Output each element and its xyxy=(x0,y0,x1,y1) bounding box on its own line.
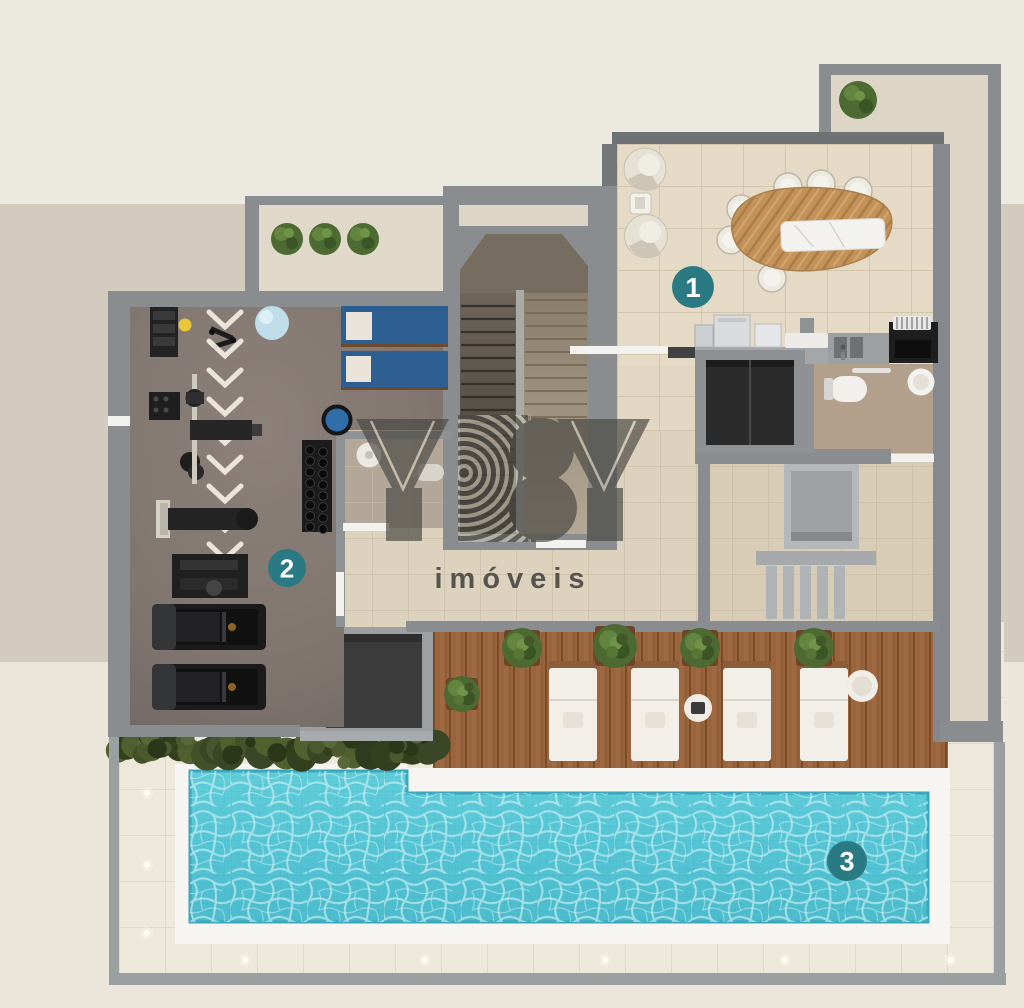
svg-text:imóveis: imóveis xyxy=(435,563,592,595)
svg-text:1: 1 xyxy=(685,272,701,303)
svg-text:2: 2 xyxy=(280,553,294,583)
svg-text:3: 3 xyxy=(839,847,854,877)
